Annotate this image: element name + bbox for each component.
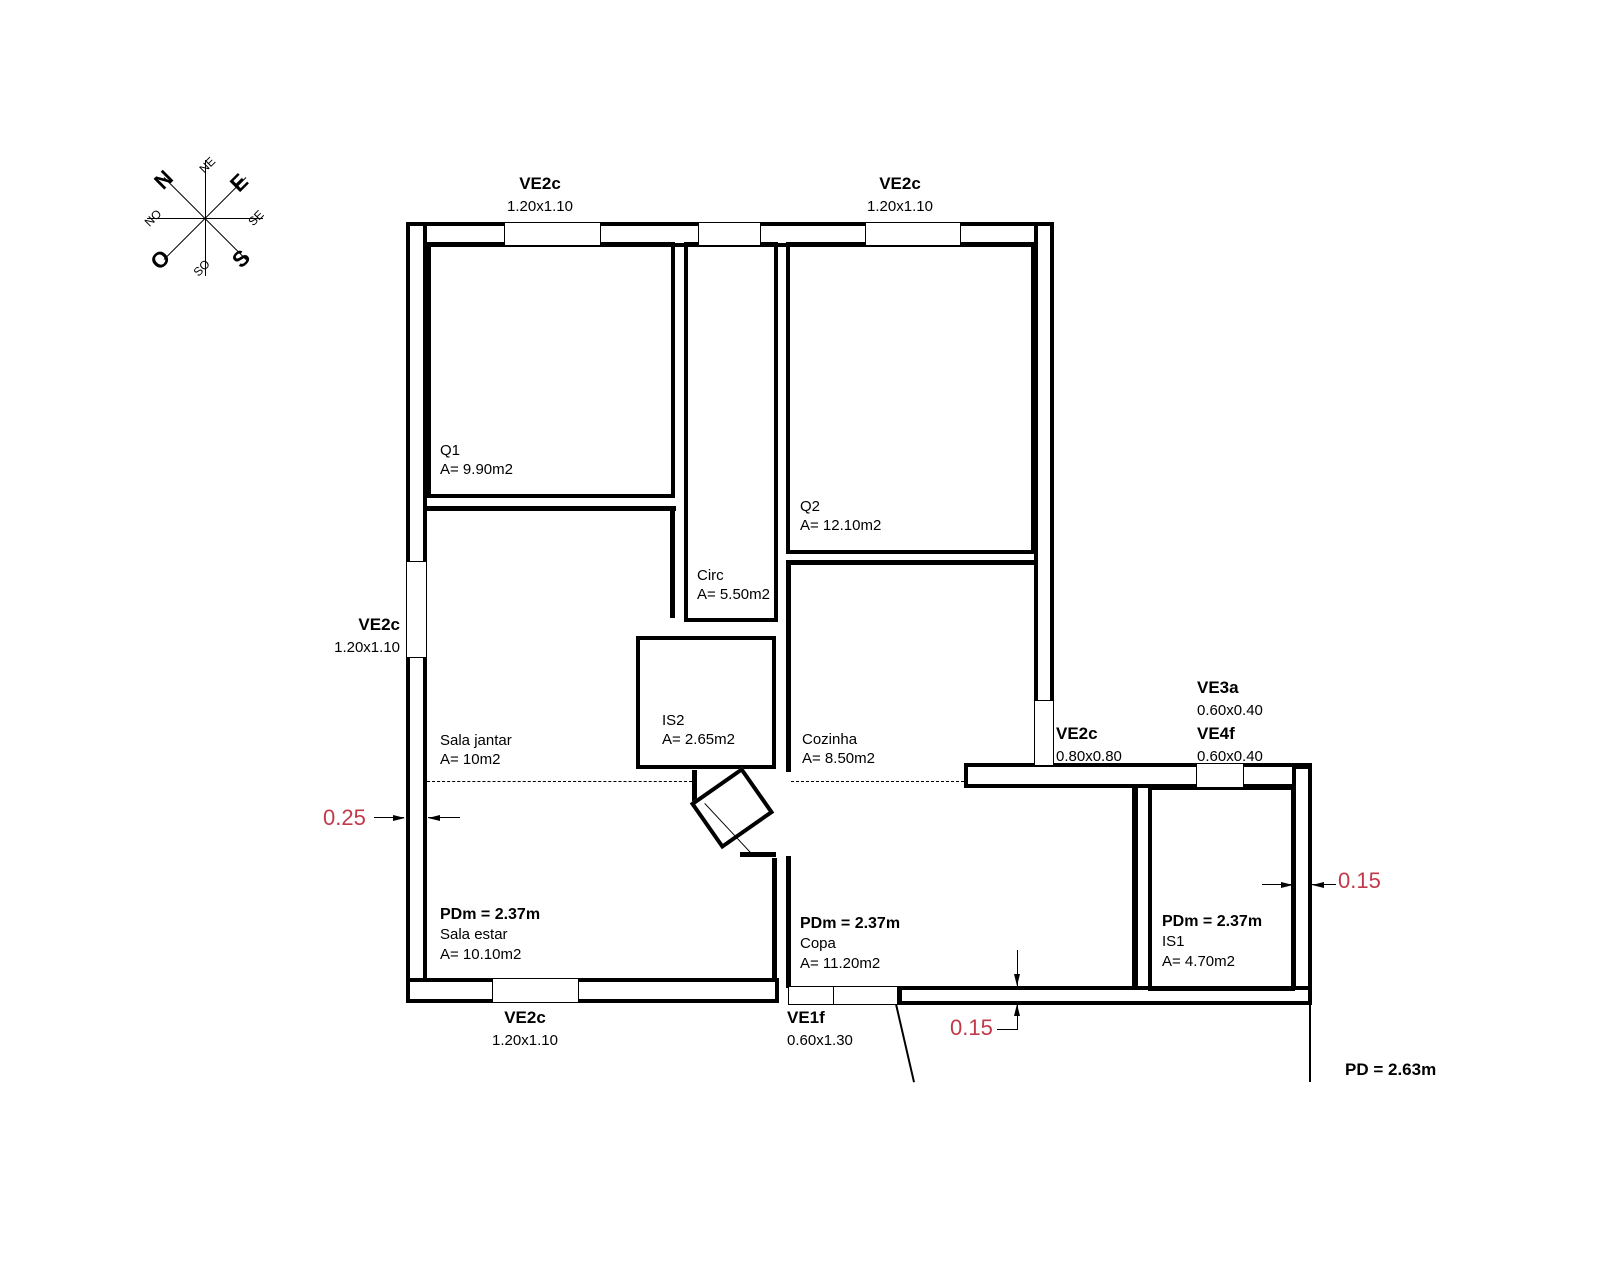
ceiling-height-note: PD = 2.63m [1345,1060,1436,1080]
window-label-top-right: VE2c 1.20x1.10 [835,172,965,218]
window-ve2c-bottom [492,978,579,1003]
room-outline-is2 [636,636,776,769]
dimension-left-wall-value: 0.25 [323,805,366,831]
room-name: Copa [800,934,900,954]
window-code: VE1f [787,1006,853,1029]
dimension-right-wall-value: 0.15 [1338,868,1381,894]
compass-label-s: S [227,245,256,274]
room-name: Sala estar [440,925,540,945]
window-label-entry: VE1f 0.60x1.30 [787,1006,853,1052]
section-line-left [427,781,692,782]
window-label-ve3a-ve4f: VE3a 0.60x0.40 VE4f 0.60x0.40 [1197,676,1263,768]
wall-extension-right [1292,765,1312,1005]
window-code: VE2c [835,172,965,195]
window-label-top-left: VE2c 1.20x1.10 [475,172,605,218]
window-size: 1.20x1.10 [460,1029,590,1052]
window-code: VE2c [460,1006,590,1029]
entry-door-swing-line [895,1004,915,1082]
wall-sala-right-lower [772,858,777,982]
room-label-circ: Circ A= 5.50m2 [697,566,770,604]
dimension-arrow-down [1014,974,1020,986]
interior-door-leaf [690,767,775,850]
wall-right-extension-line [1309,1004,1311,1082]
window-code: VE2c [1056,722,1122,745]
room-ceiling-height: PDm = 2.37m [1162,912,1262,932]
room-label-sala-jantar: Sala jantar A= 10m2 [440,731,512,769]
window-code: VE3a [1197,676,1263,699]
room-ceiling-height: PDm = 2.37m [440,905,540,925]
window-size: 0.60x0.40 [1197,699,1263,722]
window-ve2c-top-left [504,222,601,246]
window-label-bottom: VE2c 1.20x1.10 [460,1006,590,1052]
dimension-bottom-wall-value: 0.15 [950,1015,993,1041]
room-label-is2: IS2 A= 2.65m2 [662,711,735,749]
room-area: A= 10.10m2 [440,945,540,965]
room-outline-circ [684,242,778,622]
window-size: 1.20x1.10 [475,195,605,218]
window-ve1f-entry [788,986,898,1005]
room-name: IS1 [1162,932,1262,952]
dimension-arrow-up [1014,1004,1020,1016]
compass-label-n: N [149,165,179,195]
room-area: A= 12.10m2 [800,516,881,535]
wall-bottom-main [406,978,779,1003]
window-ve1f-divider [833,986,834,1005]
window-size: 1.20x1.10 [835,195,965,218]
window-corridor-top [698,222,761,246]
wall-sala-right-upper [670,506,675,618]
compass-label-no: NO [142,207,165,230]
room-label-copa: PDm = 2.37m Copa A= 11.20m2 [800,914,900,974]
wall-cozinha-left [786,560,791,772]
window-ve2c-left [406,561,427,658]
dimension-arrow-left [428,815,440,821]
wall-cozinha-top [786,560,1035,565]
wall-sala-top [427,506,676,511]
room-label-sala-estar: PDm = 2.37m Sala estar A= 10.10m2 [440,905,540,965]
window-ve2c-right [1034,700,1054,766]
room-area: A= 10m2 [440,750,512,769]
room-name: Q1 [440,441,513,460]
room-area: A= 5.50m2 [697,585,770,604]
room-label-is1: PDm = 2.37m IS1 A= 4.70m2 [1162,912,1262,972]
room-label-q1: Q1 A= 9.90m2 [440,441,513,479]
room-label-cozinha: Cozinha A= 8.50m2 [802,730,875,768]
wall-copa-right [1132,786,1138,988]
room-name: Q2 [800,497,881,516]
room-name: Cozinha [802,730,875,749]
room-area: A= 9.90m2 [440,460,513,479]
section-line-right [791,781,964,782]
room-name: Circ [697,566,770,585]
room-ceiling-height: PDm = 2.37m [800,914,900,934]
compass-label-o: O [145,245,175,275]
window-label-left: VE2c 1.20x1.10 [300,613,400,659]
room-area: A= 8.50m2 [802,749,875,768]
dimension-arrow-right [1281,882,1293,888]
compass-label-ne: NE [196,154,218,176]
wall-right [1034,222,1054,765]
window-code: VE4f [1197,722,1263,745]
dimension-arrow-left [1312,882,1324,888]
wall-copa-left-lower [786,856,791,988]
room-area: A= 4.70m2 [1162,952,1262,972]
wall-door-stub-bottom [740,852,776,857]
compass-label-so: SO [191,257,213,279]
window-size: 1.20x1.10 [300,636,400,659]
window-size: 0.80x0.80 [1056,745,1122,768]
dimension-leader [997,1029,1018,1030]
window-label-right: VE2c 0.80x0.80 [1056,722,1122,768]
room-area: A= 2.65m2 [662,730,735,749]
window-code: VE2c [300,613,400,636]
room-area: A= 11.20m2 [800,954,900,974]
room-label-q2: Q2 A= 12.10m2 [800,497,881,535]
window-size: 0.60x1.30 [787,1029,853,1052]
window-code: VE2c [475,172,605,195]
compass-label-se: SE [245,207,266,228]
floor-plan-canvas: N E O S NE SE SO NO VE2c [0,0,1600,1280]
window-size: 0.60x0.40 [1197,745,1263,768]
window-ve2c-top-right [865,222,961,246]
dimension-arrow-right [393,815,405,821]
room-name: Sala jantar [440,731,512,750]
room-name: IS2 [662,711,735,730]
